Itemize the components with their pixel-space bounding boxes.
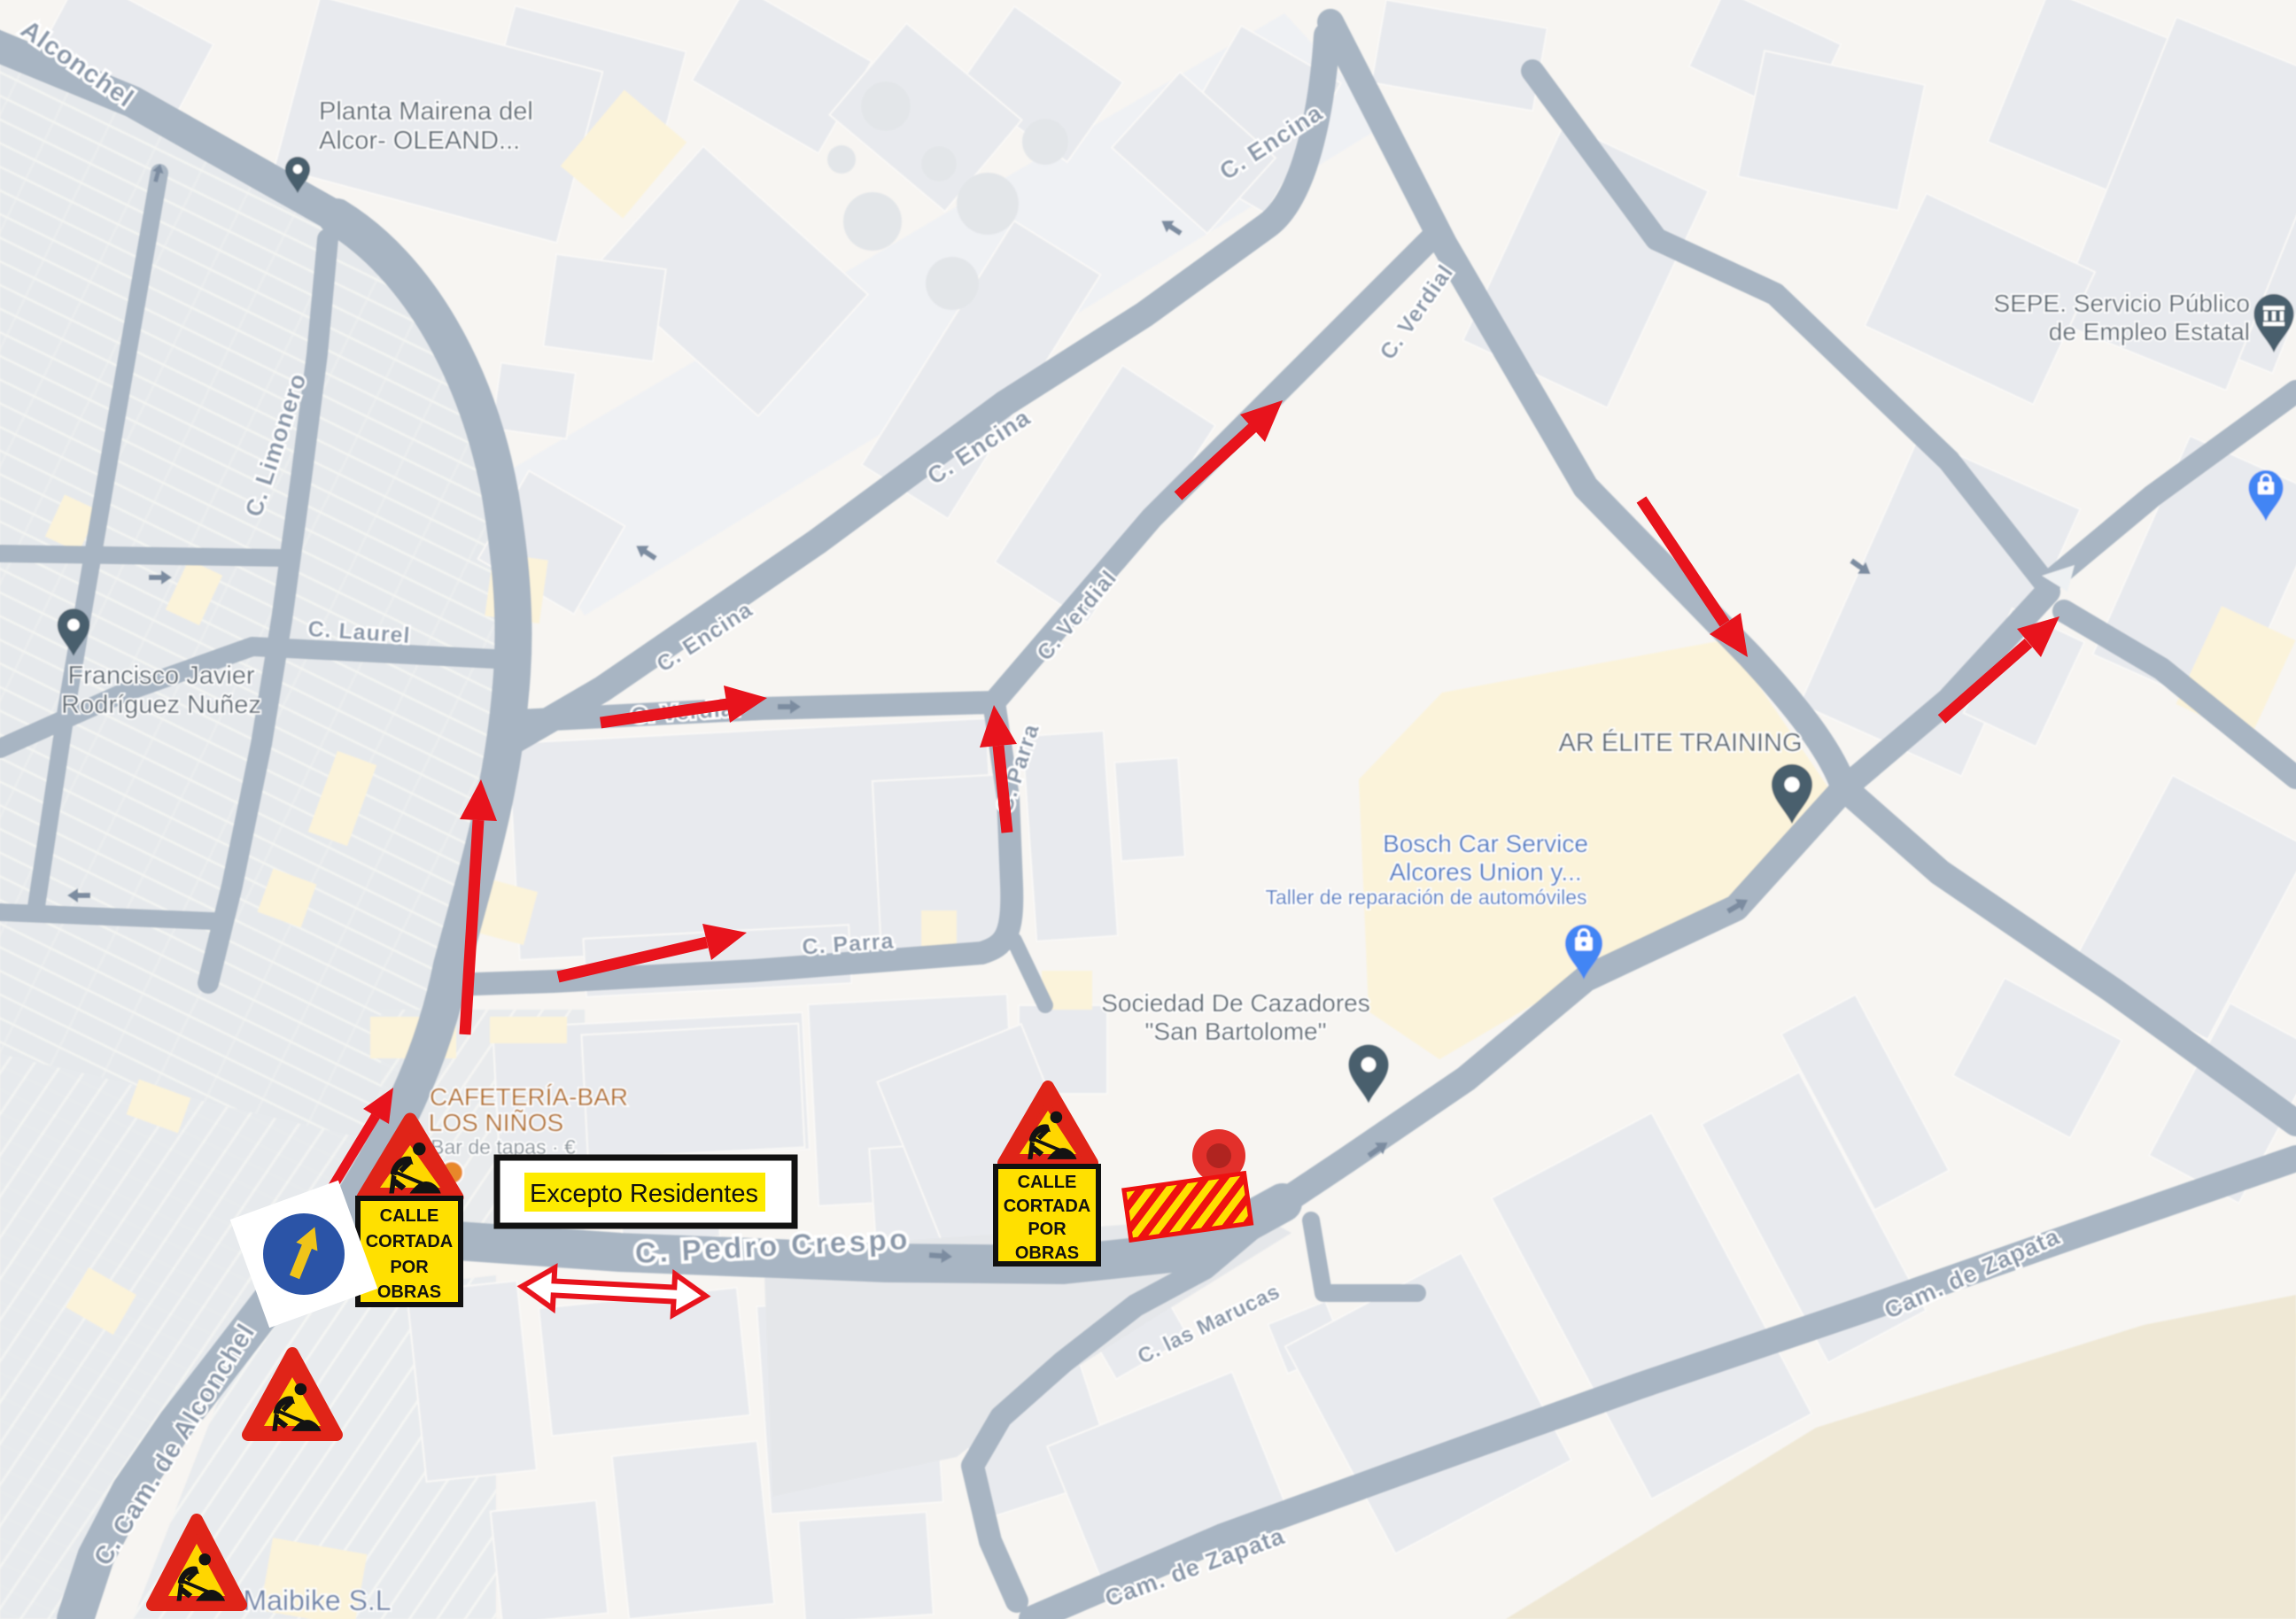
svg-text:OBRAS: OBRAS (377, 1282, 441, 1302)
svg-text:POR: POR (1028, 1220, 1067, 1239)
svg-text:CORTADA: CORTADA (1004, 1197, 1091, 1216)
svg-text:Alcor- OLEAND...: Alcor- OLEAND... (319, 127, 520, 155)
svg-text:AR ÉLITE TRAINING: AR ÉLITE TRAINING (1558, 728, 1802, 757)
svg-text:SEPE. Servicio Público: SEPE. Servicio Público (1994, 290, 2250, 317)
svg-text:Alcores Union y...: Alcores Union y... (1389, 858, 1581, 886)
svg-text:LOS NIÑOS: LOS NIÑOS (429, 1109, 563, 1136)
svg-text:CAFETERÍA-BAR: CAFETERÍA-BAR (430, 1083, 628, 1111)
svg-text:Francisco Javier: Francisco Javier (67, 662, 254, 690)
svg-text:Planta Mairena del: Planta Mairena del (319, 97, 533, 126)
svg-text:CORTADA: CORTADA (366, 1232, 454, 1251)
svg-text:CALLE: CALLE (1018, 1173, 1077, 1192)
svg-text:Rodríguez Nuñez: Rodríguez Nuñez (61, 691, 261, 719)
svg-text:de Empleo Estatal: de Empleo Estatal (2049, 318, 2250, 345)
svg-text:"San Bartolome": "San Bartolome" (1144, 1018, 1326, 1045)
svg-text:Sociedad De Cazadores: Sociedad De Cazadores (1101, 989, 1370, 1017)
svg-text:CALLE: CALLE (380, 1206, 439, 1226)
svg-text:Taller de reparación de automó: Taller de reparación de automóviles (1265, 886, 1586, 909)
svg-text:Bosch Car Service: Bosch Car Service (1383, 830, 1588, 857)
svg-text:Excepto Residentes: Excepto Residentes (530, 1180, 758, 1208)
svg-text:POR: POR (390, 1258, 429, 1277)
svg-text:OBRAS: OBRAS (1015, 1243, 1079, 1263)
svg-text:Maibike S.L: Maibike S.L (243, 1584, 391, 1616)
